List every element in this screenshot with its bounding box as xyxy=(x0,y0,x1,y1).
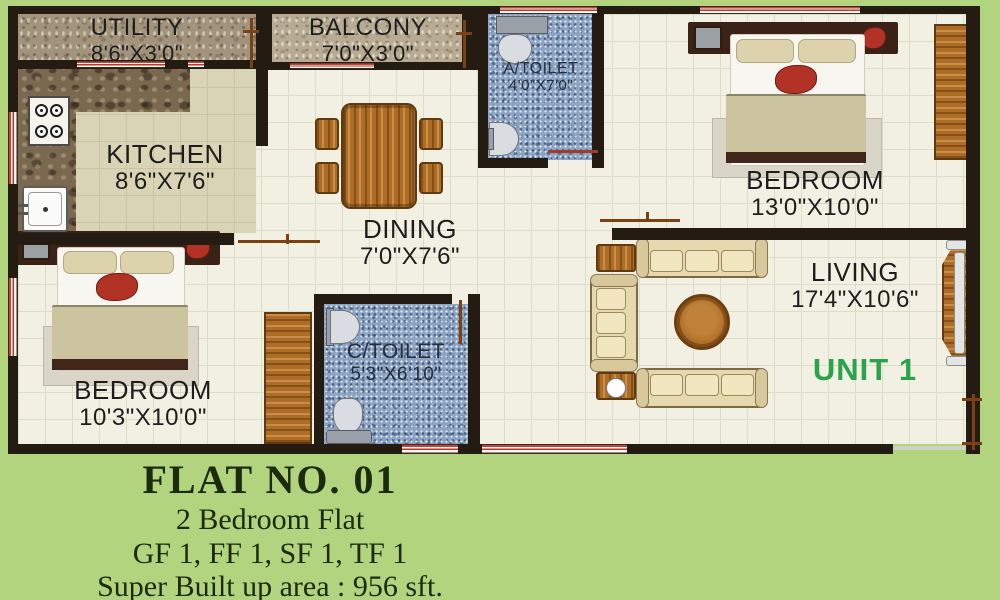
plan-footer: FLAT NO. 01 2 Bedroom Flat GF 1, FF 1, S… xyxy=(0,458,540,600)
dining-chair xyxy=(419,118,443,150)
door-threshold xyxy=(893,446,966,450)
door-swing xyxy=(456,32,472,35)
room-dims: 7'0"X3'0" xyxy=(278,42,458,67)
wc-tank xyxy=(326,430,372,444)
tv-shelf xyxy=(946,240,968,250)
room-dims: 8'6"X3'0" xyxy=(47,42,227,67)
kitchen-sink xyxy=(22,186,68,232)
window xyxy=(8,112,18,184)
door-swing xyxy=(238,240,320,243)
flat-type: 2 Bedroom Flat xyxy=(0,504,540,536)
window xyxy=(402,444,458,454)
tv-screen xyxy=(954,252,965,354)
bedroom1-decor xyxy=(862,27,886,49)
sofa-three-seater-side xyxy=(590,274,638,372)
door-swing xyxy=(250,18,253,68)
room-label-balcony: BALCONY 7'0"X3'0" xyxy=(278,15,458,67)
dining-chair xyxy=(419,162,443,194)
wall-segment xyxy=(256,60,268,146)
wall-segment xyxy=(8,444,402,454)
dining-chair xyxy=(315,162,339,194)
bed-pillow xyxy=(120,251,174,274)
sofa-three-seater xyxy=(636,368,768,408)
bed-blanket xyxy=(52,305,188,363)
room-label-bedroom2: BEDROOM 10'3"X10'0" xyxy=(33,376,253,432)
room-dims: 10'3"X10'0" xyxy=(33,405,253,432)
sofa-armrest xyxy=(755,368,768,408)
bed-pillow xyxy=(798,39,856,63)
faucet-icon xyxy=(18,204,28,207)
door-swing xyxy=(463,20,466,68)
coffee-table xyxy=(674,294,730,350)
bed-pillow xyxy=(63,251,117,274)
tv-shelf xyxy=(946,356,968,366)
wall-segment xyxy=(314,294,452,304)
room-dims: 4'0"X7'0" xyxy=(486,78,596,95)
floor-plan-page: UTILITY 8'6"X3'0" BALCONY 7'0"X3'0" A/TO… xyxy=(0,0,1000,600)
room-name: DINING xyxy=(330,215,490,244)
bed-blanket xyxy=(726,94,866,156)
room-dims: 7'0"X7'6" xyxy=(330,244,490,271)
sofa-armrest xyxy=(590,359,638,372)
bed-logo xyxy=(96,273,138,301)
dining-table xyxy=(341,103,417,209)
room-name: A/TOILET xyxy=(486,60,596,78)
door-swing xyxy=(548,150,598,153)
room-dims: 17'4"X10'6" xyxy=(760,287,950,314)
room-name: C/TOILET xyxy=(324,340,468,364)
dining-chair xyxy=(315,118,339,150)
sofa-cushions xyxy=(650,250,754,272)
faucet-icon xyxy=(18,212,28,215)
bedroom2-wardrobe xyxy=(264,312,312,444)
wall-segment xyxy=(468,294,480,446)
sofa-cushions xyxy=(650,374,754,396)
door-swing xyxy=(646,212,649,222)
flat-number: FLAT NO. 01 xyxy=(0,458,540,502)
bed-logo xyxy=(775,65,817,94)
room-label-bedroom1: BEDROOM 13'0"X10'0" xyxy=(695,166,935,222)
wall-segment xyxy=(8,233,234,245)
room-name: BEDROOM xyxy=(33,376,253,405)
room-name: UTILITY xyxy=(47,15,227,42)
window xyxy=(8,278,18,356)
bed-pillow xyxy=(736,39,794,63)
wall-segment xyxy=(8,6,18,454)
sofa-armrest xyxy=(590,274,638,287)
window xyxy=(500,6,597,14)
sofa-armrest xyxy=(636,238,649,278)
toilet-wc-icon xyxy=(333,398,363,434)
door-swing xyxy=(459,300,462,344)
wall-segment xyxy=(314,294,324,446)
room-dims: 5'3"X6'10" xyxy=(324,364,468,385)
bed-footboard xyxy=(52,359,188,370)
room-label-kitchen: KITCHEN 8'6"X7'6" xyxy=(85,140,245,196)
room-name: LIVING xyxy=(760,258,950,287)
room-label-attached-toilet: A/TOILET 4'0"X7'0" xyxy=(486,60,596,95)
wall-segment xyxy=(627,444,893,454)
built-up-area: Super Built up area : 956 sft. xyxy=(0,571,540,600)
room-dims: 13'0"X10'0" xyxy=(695,195,935,222)
bedroom1-wardrobe xyxy=(934,24,968,160)
room-name: KITCHEN xyxy=(85,140,245,169)
room-label-dining: DINING 7'0"X7'6" xyxy=(330,215,490,271)
main-door-swing xyxy=(962,398,982,401)
door-swing xyxy=(600,219,680,222)
stove-icon xyxy=(28,96,70,146)
washbasin-counter xyxy=(496,16,548,34)
sofa-cushions xyxy=(596,288,626,358)
window xyxy=(700,6,860,14)
floor-availability: GF 1, FF 1, SF 1, TF 1 xyxy=(0,538,540,570)
unit-label: UNIT 1 xyxy=(800,352,930,388)
sofa-armrest xyxy=(636,368,649,408)
window xyxy=(482,444,627,454)
wall-segment xyxy=(966,6,980,454)
living-phone-table xyxy=(596,372,636,400)
wc-tank xyxy=(488,128,494,150)
bed-footboard xyxy=(726,152,866,163)
main-door-swing xyxy=(962,442,982,445)
wall-segment xyxy=(612,228,966,240)
door-swing xyxy=(286,234,289,244)
room-name: BEDROOM xyxy=(695,166,935,195)
sofa-three-seater xyxy=(636,238,768,278)
living-side-table xyxy=(596,244,636,272)
door-swing xyxy=(243,30,259,33)
phone-icon xyxy=(606,378,626,398)
room-dims: 8'6"X7'6" xyxy=(85,169,245,196)
room-label-utility: UTILITY 8'6"X3'0" xyxy=(47,15,227,67)
room-label-common-toilet: C/TOILET 5'3"X6'10" xyxy=(324,340,468,385)
wall-segment xyxy=(478,158,548,168)
room-label-living: LIVING 17'4"X10'6" xyxy=(760,258,950,314)
bedroom1-nightstand xyxy=(694,26,722,50)
room-name: BALCONY xyxy=(278,15,458,42)
